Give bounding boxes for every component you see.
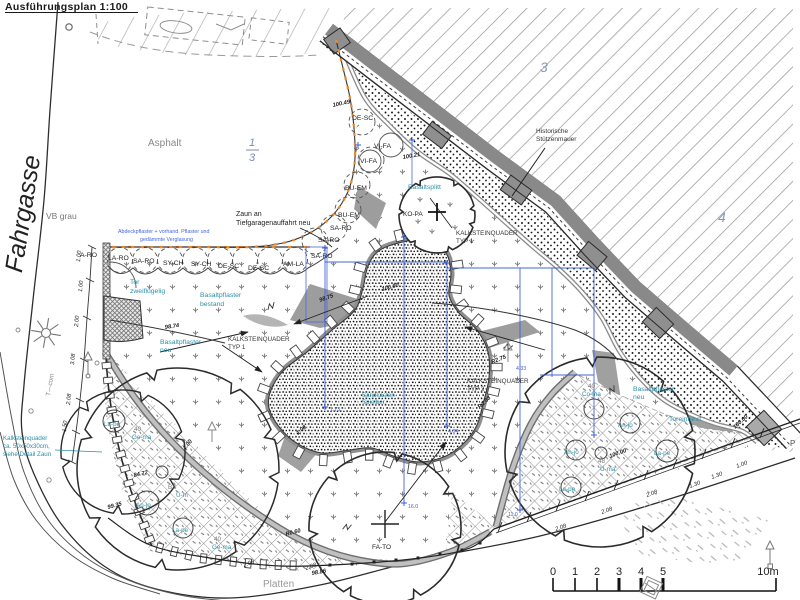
svg-text:AM-LA: AM-LA <box>283 261 304 268</box>
svg-text:48: 48 <box>598 458 606 465</box>
svg-text:Tiefgaragenauffahrt neu: Tiefgaragenauffahrt neu <box>236 220 310 227</box>
svg-text:Historische: Historische <box>536 128 569 135</box>
svg-text:10m: 10m <box>757 566 778 578</box>
svg-text:2: 2 <box>594 566 600 578</box>
svg-text:Tor: Tor <box>130 279 140 286</box>
svg-text:3: 3 <box>540 59 548 75</box>
svg-text:1: 1 <box>572 566 578 578</box>
svg-text:40: 40 <box>214 536 222 543</box>
svg-text:4.04: 4.04 <box>448 429 458 435</box>
svg-text:FA-TO: FA-TO <box>372 544 391 551</box>
svg-text:1.50: 1.50 <box>62 420 69 433</box>
svg-text:BU-EM: BU-EM <box>345 185 367 192</box>
svg-text:An-jo: An-jo <box>136 502 151 509</box>
svg-text:SA-RO: SA-RO <box>318 237 340 244</box>
svg-text:Basaltpflaster: Basaltpflaster <box>633 386 675 393</box>
svg-text:2.08: 2.08 <box>66 393 73 407</box>
svg-text:DE-SC: DE-SC <box>352 115 373 122</box>
svg-text:Ge-ma: Ge-ma <box>212 544 232 551</box>
svg-text:La-pe: La-pe <box>654 450 671 457</box>
svg-text:Toreinfahrt: Toreinfahrt <box>669 416 701 423</box>
svg-text:An-jo: An-jo <box>564 449 579 456</box>
svg-text:zweiflügelig: zweiflügelig <box>130 288 165 295</box>
svg-text:3: 3 <box>616 566 622 578</box>
svg-text:La-pe: La-pe <box>104 421 121 428</box>
svg-text:Spielber.: Spielber. <box>362 399 386 406</box>
svg-text:ca. 50x50x30cm,: ca. 50x50x30cm, <box>3 443 50 450</box>
svg-text:SY-CH: SY-CH <box>163 260 184 267</box>
svg-text:DE-SC: DE-SC <box>218 263 239 270</box>
svg-text:5: 5 <box>660 566 666 578</box>
svg-text:4: 4 <box>718 209 726 225</box>
svg-text:KALKSTEINQUADER: KALKSTEINQUADER <box>456 230 518 237</box>
svg-text:gedämmte Verglasung: gedämmte Verglasung <box>140 237 193 243</box>
svg-text:Zaun an: Zaun an <box>236 211 262 218</box>
svg-text:1.73: 1.73 <box>330 407 340 413</box>
svg-text:BS: BS <box>168 484 176 491</box>
svg-text:Platten: Platten <box>263 579 294 590</box>
svg-text:Basaltpflaster: Basaltpflaster <box>200 292 242 299</box>
svg-text:La-pe: La-pe <box>172 527 189 534</box>
svg-text:3.08: 3.08 <box>70 353 77 366</box>
svg-text:U-m: U-m <box>176 492 188 499</box>
svg-text:Ausführungsplan 1:100: Ausführungsplan 1:100 <box>5 1 128 13</box>
svg-text:Kalksteinquader: Kalksteinquader <box>3 435 47 442</box>
svg-text:bestand: bestand <box>200 301 224 308</box>
svg-text:SA-RO: SA-RO <box>311 253 333 260</box>
svg-text:P: P <box>790 439 795 448</box>
svg-text:SA-RO: SA-RO <box>133 258 155 265</box>
svg-text:LA-RO: LA-RO <box>108 255 129 262</box>
svg-text:3: 3 <box>249 152 256 164</box>
svg-text:4.33: 4.33 <box>516 366 526 372</box>
svg-text:16.0: 16.0 <box>408 504 418 510</box>
svg-text:1.00: 1.00 <box>76 250 83 263</box>
svg-text:neu: neu <box>160 347 172 354</box>
svg-text:40: 40 <box>588 383 596 390</box>
svg-text:1.00: 1.00 <box>78 280 85 293</box>
svg-text:2.00: 2.00 <box>74 315 81 329</box>
svg-text:1: 1 <box>249 137 255 149</box>
svg-text:KALKSTEINQUADER: KALKSTEINQUADER <box>228 336 290 343</box>
svg-text:VI-FA: VI-FA <box>374 143 391 150</box>
svg-text:TYP 1: TYP 1 <box>456 238 474 245</box>
svg-text:BU-EM: BU-EM <box>338 212 360 219</box>
svg-text:KALKSTEINQUADER: KALKSTEINQUADER <box>467 378 529 385</box>
svg-text:Stützenmauer: Stützenmauer <box>536 136 577 143</box>
svg-text:Co-ma: Co-ma <box>582 391 601 398</box>
svg-text:TYP 1: TYP 1 <box>228 344 246 351</box>
svg-text:Basaltpflaster: Basaltpflaster <box>160 339 202 346</box>
svg-text:TYP 2: TYP 2 <box>467 386 485 393</box>
svg-text:La-pe: La-pe <box>559 486 576 493</box>
svg-text:Asphalt: Asphalt <box>148 138 182 149</box>
svg-text:11.0: 11.0 <box>508 512 518 518</box>
svg-text:Ge-ma: Ge-ma <box>132 434 152 441</box>
svg-text:VI-FA: VI-FA <box>360 158 377 165</box>
svg-text:SA-RO: SA-RO <box>330 225 352 232</box>
svg-text:neu: neu <box>633 394 645 401</box>
svg-text:SY-CH: SY-CH <box>191 261 212 268</box>
svg-text:siehe Detail Zaun: siehe Detail Zaun <box>3 451 52 458</box>
svg-text:0: 0 <box>550 566 556 578</box>
svg-text:4: 4 <box>638 566 644 578</box>
svg-text:Basaltsplitt: Basaltsplitt <box>408 184 441 191</box>
svg-text:VB grau: VB grau <box>46 211 77 221</box>
svg-text:DE-SC: DE-SC <box>248 265 269 272</box>
svg-text:40: 40 <box>134 426 142 433</box>
svg-text:An-jo: An-jo <box>618 422 633 429</box>
svg-text:KO-PA: KO-PA <box>403 211 423 218</box>
svg-text:U-ma: U-ma <box>600 466 616 473</box>
svg-text:Sandkasten: Sandkasten <box>362 392 395 399</box>
svg-text:Abdeckpflaster + vorhand. Pfla: Abdeckpflaster + vorhand. Pflaster und <box>118 229 209 235</box>
